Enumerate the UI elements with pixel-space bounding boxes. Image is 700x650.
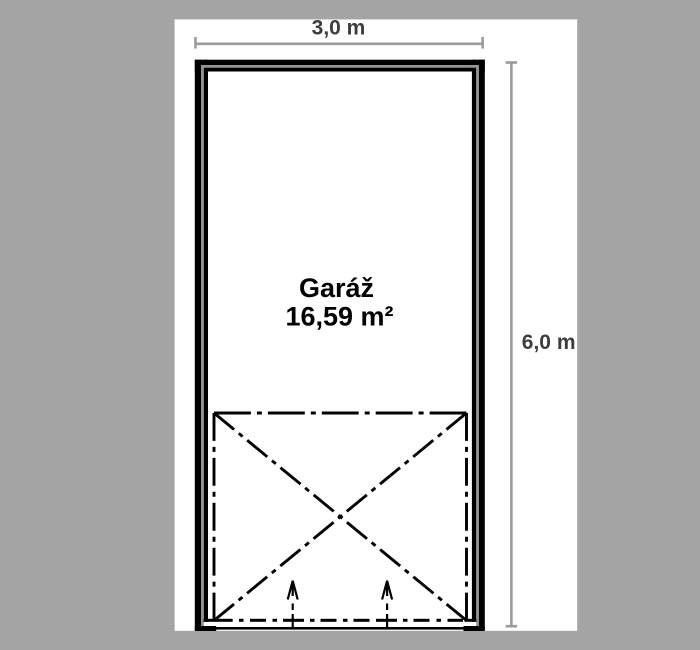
svg-text:Garáž: Garáž — [299, 273, 374, 303]
svg-text:3,0 m: 3,0 m — [312, 16, 366, 39]
svg-text:16,59 m²: 16,59 m² — [285, 301, 393, 331]
svg-text:6,0 m: 6,0 m — [522, 331, 576, 354]
